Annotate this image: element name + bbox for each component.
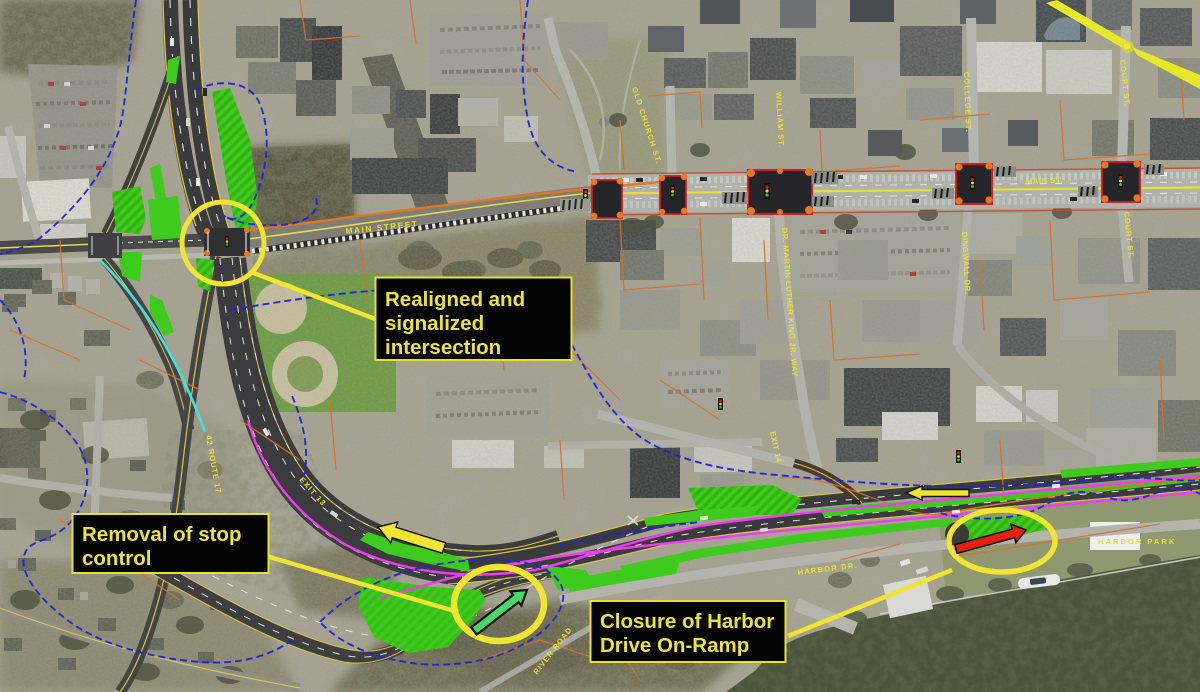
svg-text:MAIN ST.: MAIN ST. — [1026, 176, 1064, 186]
svg-text:signalized: signalized — [385, 312, 484, 335]
svg-text:intersection: intersection — [385, 336, 501, 359]
svg-text:Removal of stop: Removal of stop — [82, 523, 241, 546]
svg-text:control: control — [82, 547, 151, 570]
svg-text:Closure of Harbor: Closure of Harbor — [600, 610, 774, 633]
svg-text:HARBOR PARK: HARBOR PARK — [1098, 537, 1176, 546]
svg-text:Drive On-Ramp: Drive On-Ramp — [600, 634, 749, 657]
svg-text:Realigned and: Realigned and — [385, 288, 525, 311]
